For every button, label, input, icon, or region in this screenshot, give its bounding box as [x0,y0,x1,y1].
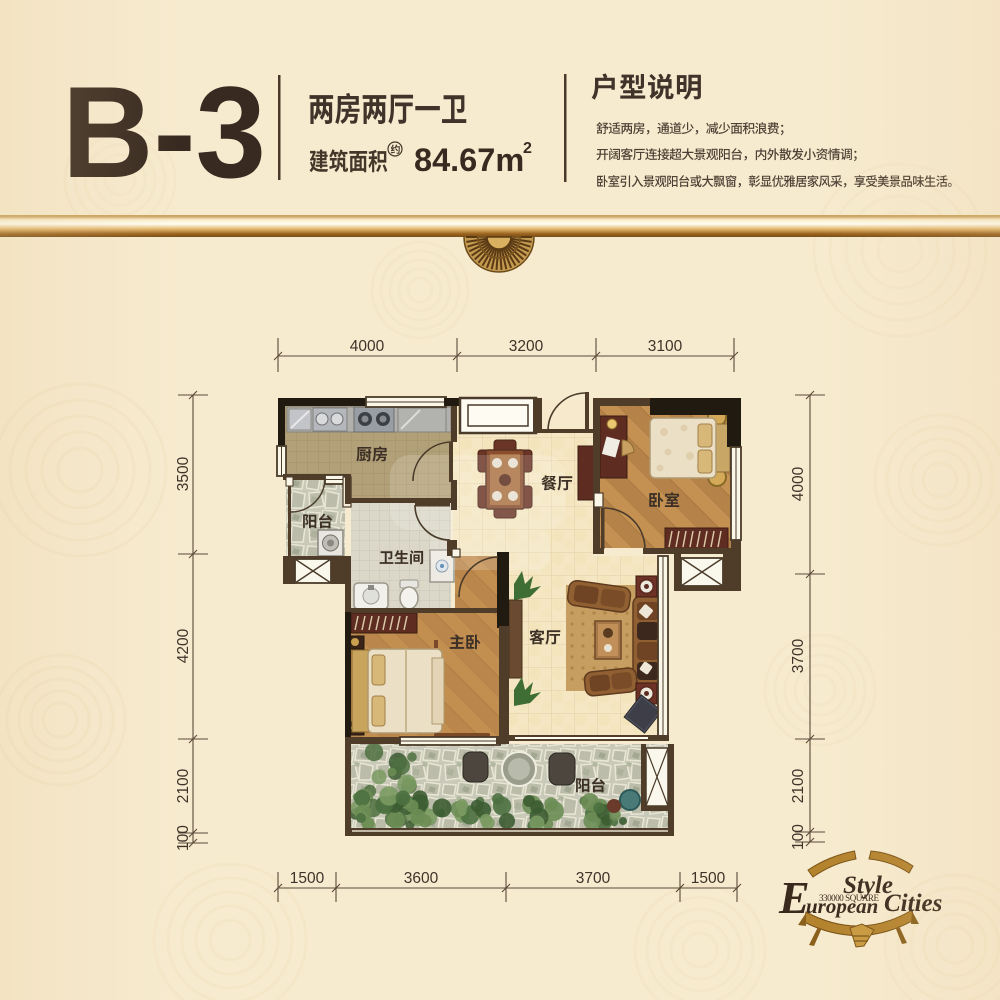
svg-text:4200: 4200 [175,628,192,663]
svg-text:Cities: Cities [884,890,942,917]
svg-text:3200: 3200 [509,338,544,355]
svg-text:2100: 2100 [790,768,807,803]
svg-text:2: 2 [523,140,532,157]
svg-text:1500: 1500 [290,870,325,887]
svg-text:B-3: B-3 [62,59,266,205]
svg-text:3700: 3700 [790,638,807,673]
svg-text:3700: 3700 [576,870,611,887]
svg-text:4000: 4000 [350,338,385,355]
svg-text:100: 100 [175,825,192,851]
svg-text:3500: 3500 [175,456,192,491]
svg-text:3100: 3100 [648,338,683,355]
svg-text:4000: 4000 [790,466,807,501]
svg-text:330000 SQUARE: 330000 SQUARE [819,893,880,903]
svg-text:2100: 2100 [175,768,192,803]
svg-text:100: 100 [790,824,807,850]
svg-text:3600: 3600 [404,870,439,887]
svg-text:E: E [778,872,810,923]
svg-text:1500: 1500 [691,870,726,887]
svg-text:84.67m: 84.67m [414,142,524,178]
